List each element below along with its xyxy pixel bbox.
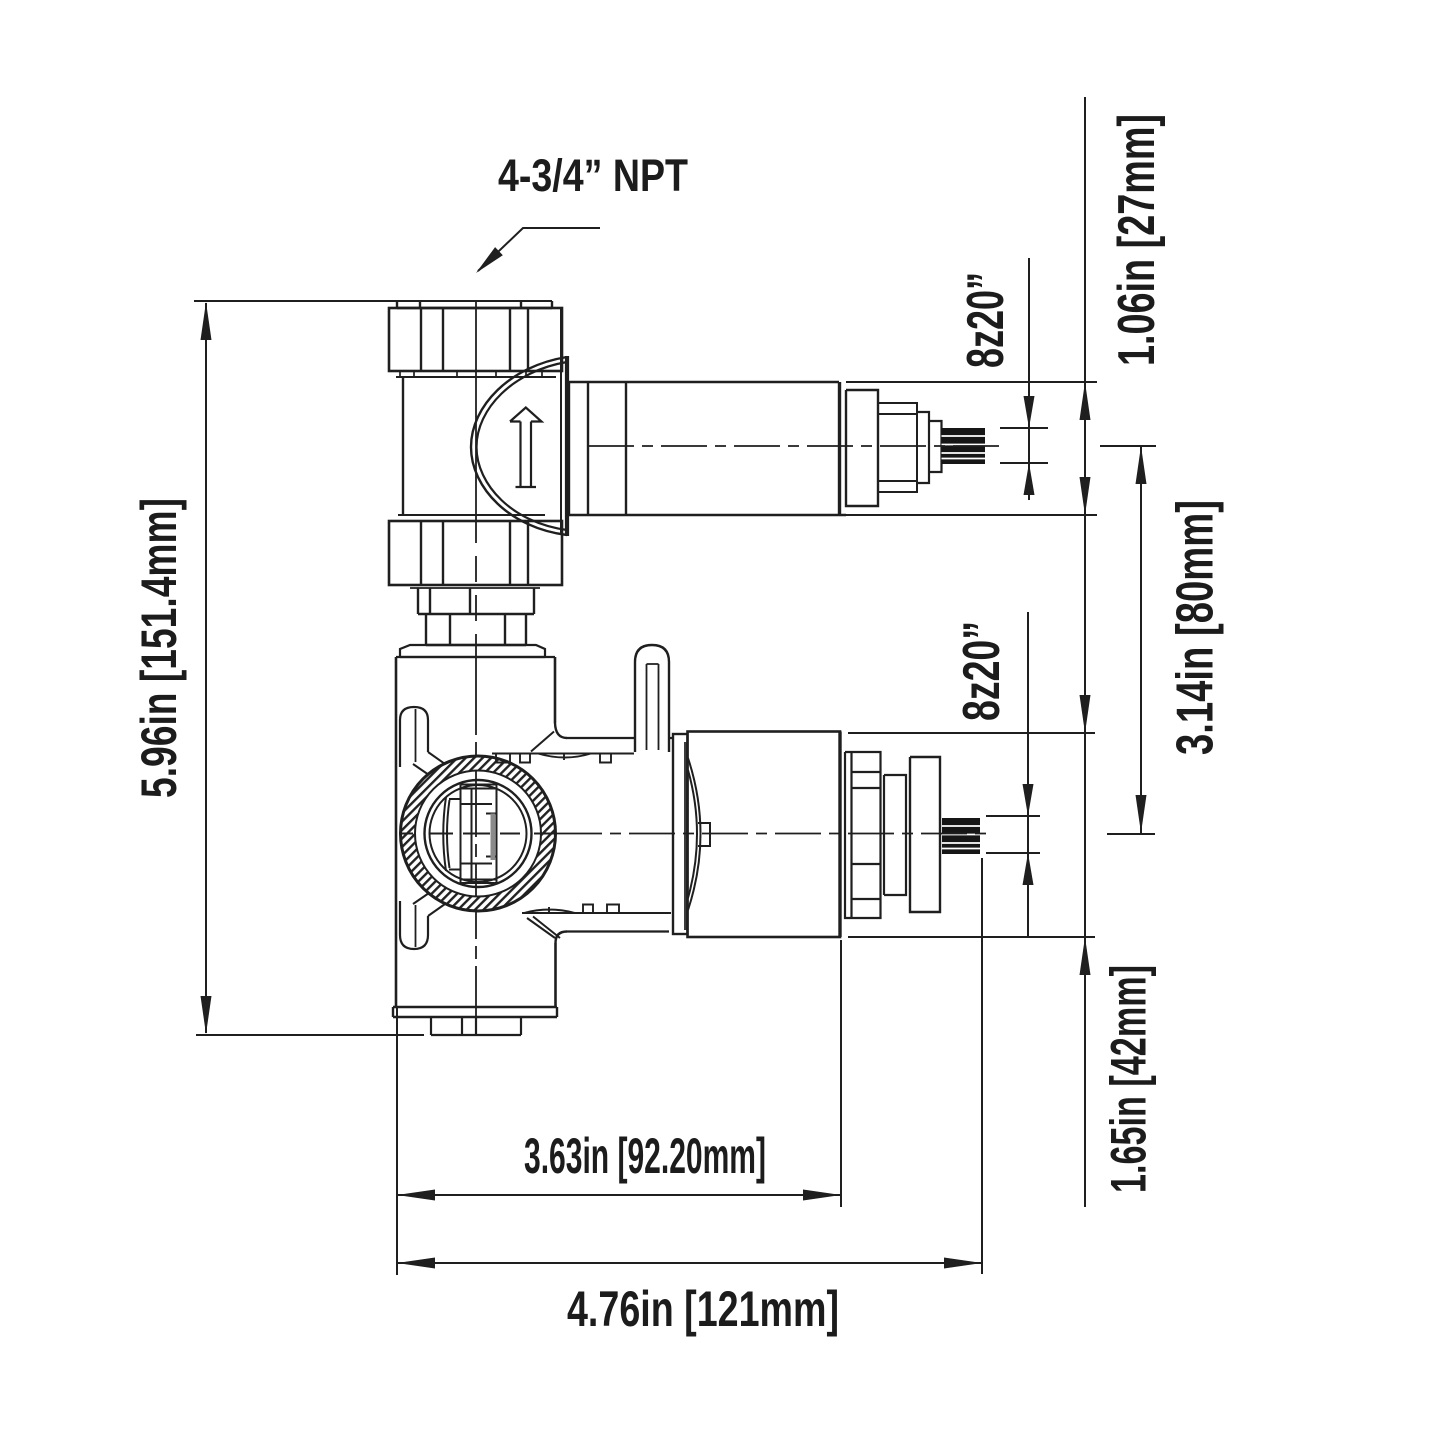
svg-text:4-3/4” NPT: 4-3/4” NPT	[498, 150, 688, 201]
svg-text:3.63in [92.20mm]: 3.63in [92.20mm]	[524, 1128, 766, 1184]
svg-text:3.14in [80mm]: 3.14in [80mm]	[1167, 500, 1225, 755]
svg-text:8z20”: 8z20”	[957, 272, 1015, 368]
svg-text:1.65in [42mm]: 1.65in [42mm]	[1101, 965, 1157, 1193]
svg-text:4.76in [121mm]: 4.76in [121mm]	[567, 1281, 839, 1337]
svg-text:8z20”: 8z20”	[953, 621, 1011, 721]
svg-text:5.96in [151.4mm]: 5.96in [151.4mm]	[131, 498, 187, 798]
svg-text:1.06in [27mm]: 1.06in [27mm]	[1108, 114, 1166, 366]
